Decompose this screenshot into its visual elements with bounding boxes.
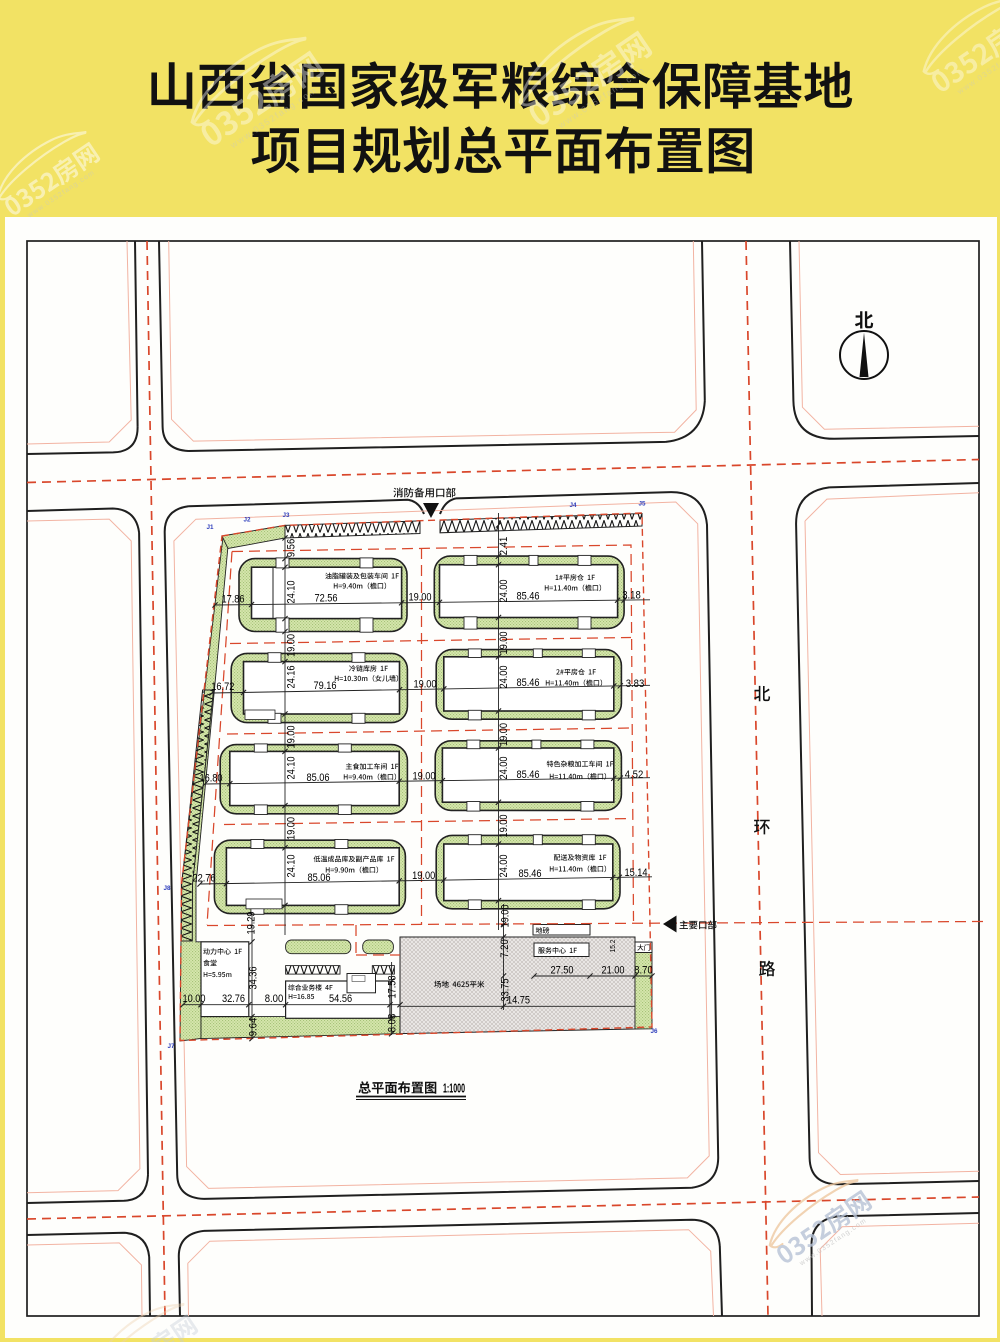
svg-text:2.41: 2.41 — [498, 537, 510, 556]
svg-text:J5: J5 — [638, 501, 646, 508]
svg-text:J2: J2 — [243, 517, 251, 524]
svg-text:10.00: 10.00 — [182, 993, 205, 1005]
svg-text:19.00: 19.00 — [408, 592, 431, 604]
svg-text:85.46: 85.46 — [516, 677, 539, 689]
svg-text:3.83: 3.83 — [626, 678, 645, 690]
svg-text:3.18: 3.18 — [622, 590, 641, 602]
svg-text:33.75: 33.75 — [500, 978, 512, 1001]
svg-text:24.10: 24.10 — [286, 756, 298, 779]
svg-text:19.00: 19.00 — [286, 725, 298, 748]
svg-text:24.00: 24.00 — [498, 665, 510, 688]
svg-text:16.80: 16.80 — [199, 772, 222, 784]
svg-text:17.58: 17.58 — [387, 975, 399, 998]
svg-text:19.29: 19.29 — [246, 911, 258, 934]
svg-text:9.64: 9.64 — [248, 1018, 260, 1037]
svg-text:9.56: 9.56 — [286, 539, 298, 558]
svg-text:J4: J4 — [569, 502, 577, 509]
svg-text:85.06: 85.06 — [307, 872, 330, 884]
svg-text:17.86: 17.86 — [221, 593, 244, 605]
svg-text:34.36: 34.36 — [248, 966, 260, 989]
svg-text:J8: J8 — [163, 885, 171, 892]
svg-text:24.00: 24.00 — [498, 854, 510, 877]
svg-text:24.16: 24.16 — [286, 665, 298, 688]
svg-text:J7: J7 — [167, 1043, 175, 1050]
svg-text:4.52: 4.52 — [625, 769, 644, 781]
svg-text:24.10: 24.10 — [286, 854, 298, 877]
svg-text:19.00: 19.00 — [412, 870, 435, 882]
svg-text:J3: J3 — [282, 512, 290, 519]
svg-text:54.56: 54.56 — [329, 993, 352, 1005]
svg-text:7.20: 7.20 — [499, 939, 511, 958]
svg-text:1:1000: 1:1000 — [443, 1081, 465, 1096]
svg-text:24.10: 24.10 — [286, 580, 298, 603]
svg-text:J6: J6 — [650, 1028, 658, 1035]
svg-text:8.70: 8.70 — [634, 964, 653, 976]
svg-text:21.00: 21.00 — [601, 964, 624, 976]
svg-text:19.00: 19.00 — [286, 817, 298, 840]
svg-text:32.76: 32.76 — [222, 993, 245, 1005]
svg-text:22.76: 22.76 — [192, 872, 215, 884]
svg-text:8.00: 8.00 — [265, 993, 284, 1005]
svg-text:24.00: 24.00 — [498, 579, 510, 602]
svg-text:85.06: 85.06 — [306, 772, 329, 784]
svg-text:19.00: 19.00 — [500, 904, 512, 927]
svg-text:27.50: 27.50 — [550, 964, 573, 976]
svg-text:72.56: 72.56 — [314, 593, 337, 605]
svg-text:19.00: 19.00 — [413, 679, 436, 691]
svg-text:16.72: 16.72 — [211, 681, 234, 693]
svg-text:15.2: 15.2 — [608, 940, 617, 953]
svg-text:24.00: 24.00 — [498, 756, 510, 779]
svg-text:85.46: 85.46 — [516, 769, 539, 781]
svg-text:19.00: 19.00 — [498, 814, 510, 837]
svg-text:79.16: 79.16 — [313, 680, 336, 692]
svg-text:19.00: 19.00 — [498, 723, 510, 746]
svg-text:85.46: 85.46 — [516, 590, 539, 602]
svg-text:19.00: 19.00 — [498, 631, 510, 654]
svg-text:19.00: 19.00 — [412, 771, 435, 783]
svg-text:J1: J1 — [206, 524, 214, 531]
svg-text:19.00: 19.00 — [286, 634, 298, 657]
svg-text:8.08: 8.08 — [387, 1014, 399, 1033]
svg-text:85.46: 85.46 — [518, 868, 541, 880]
svg-text:15.14: 15.14 — [624, 867, 647, 879]
